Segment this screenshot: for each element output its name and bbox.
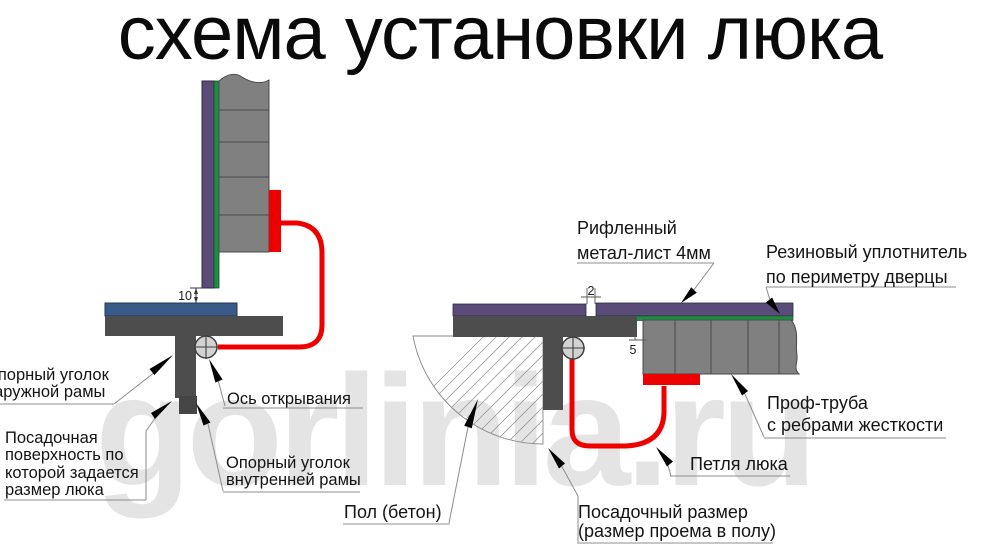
- dimension-2: 2: [581, 284, 601, 304]
- inner-frame-angle-piece: [179, 396, 197, 414]
- support-plate-left: [105, 303, 237, 316]
- frame-stem-right: [543, 337, 563, 410]
- label-concrete-floor: Пол (бетон): [344, 500, 442, 525]
- hinge-bracket-left: [269, 190, 281, 252]
- label-seating-surface: Посадочная поверхность по которой задает…: [5, 430, 139, 500]
- svg-text:10: 10: [178, 289, 192, 303]
- label-metal-sheet: Рифленный метал-лист 4мм: [577, 216, 711, 266]
- concrete-floor-section: [413, 336, 543, 444]
- profile-tube-right: [643, 320, 799, 374]
- door-sheet-right: [596, 303, 793, 316]
- label-inner-frame-angle: Опорный уголок внутренней рамы: [226, 455, 361, 490]
- svg-text:2: 2: [588, 284, 595, 298]
- label-profile-tube: Проф-труба с ребрами жесткости: [767, 392, 943, 436]
- page-title: схема установки люка: [0, 0, 1000, 72]
- lid-sheet-left: [202, 81, 214, 288]
- label-outer-frame-angle: Опорный уголок наружной рамы: [0, 367, 109, 402]
- label-rubber-seal: Резиновый уплотнитель по периметру дверц…: [766, 240, 967, 290]
- hinge-bracket-right: [643, 374, 700, 385]
- frame-angle-bar-right: [453, 316, 637, 337]
- frame-sheet-right: [453, 304, 586, 316]
- outer-frame-angle-bar: [105, 316, 283, 336]
- opening-axis-marker-left: [194, 335, 218, 359]
- opening-axis-marker-right: [561, 336, 585, 360]
- dimension-10: 10: [178, 288, 203, 303]
- seal-strip-left: [214, 81, 219, 288]
- frame-stem-left: [175, 336, 196, 398]
- label-hatch-hinge: Петля люка: [690, 452, 788, 477]
- label-opening-size: Посадочный размер (размер проема в полу): [578, 503, 776, 541]
- svg-text:5: 5: [630, 343, 637, 357]
- label-opening-axis: Ось открывания: [227, 391, 351, 408]
- profile-tube-left: [219, 74, 269, 252]
